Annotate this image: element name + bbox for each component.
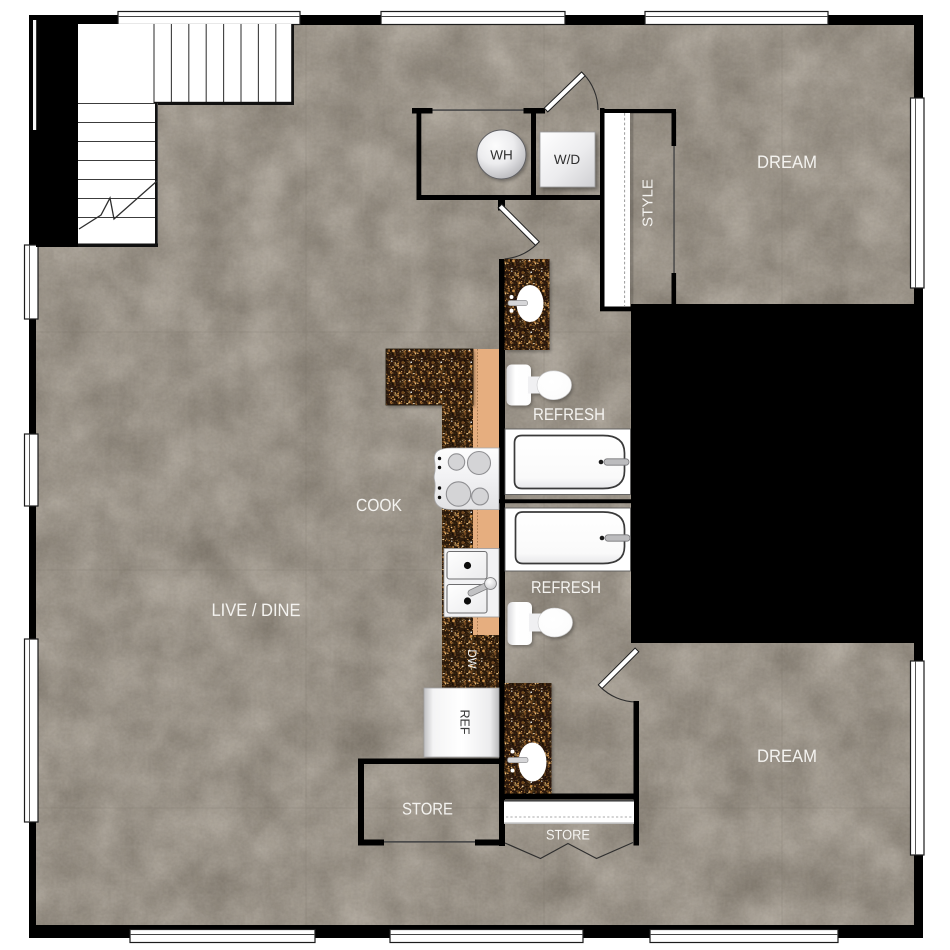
svg-text:W/D: W/D — [554, 152, 581, 167]
svg-text:REF: REF — [458, 710, 472, 735]
svg-text:STORE: STORE — [402, 799, 453, 818]
svg-text:REFRESH: REFRESH — [533, 405, 605, 424]
svg-text:LIVE / DINE: LIVE / DINE — [211, 600, 300, 620]
svg-text:DREAM: DREAM — [757, 746, 817, 766]
svg-text:DREAM: DREAM — [757, 152, 817, 172]
svg-text:WH: WH — [490, 147, 513, 162]
svg-text:DW: DW — [465, 649, 477, 668]
svg-text:STORE: STORE — [546, 826, 590, 842]
svg-text:STYLE: STYLE — [640, 179, 657, 227]
svg-text:REFRESH: REFRESH — [531, 578, 601, 597]
svg-text:COOK: COOK — [356, 495, 402, 515]
